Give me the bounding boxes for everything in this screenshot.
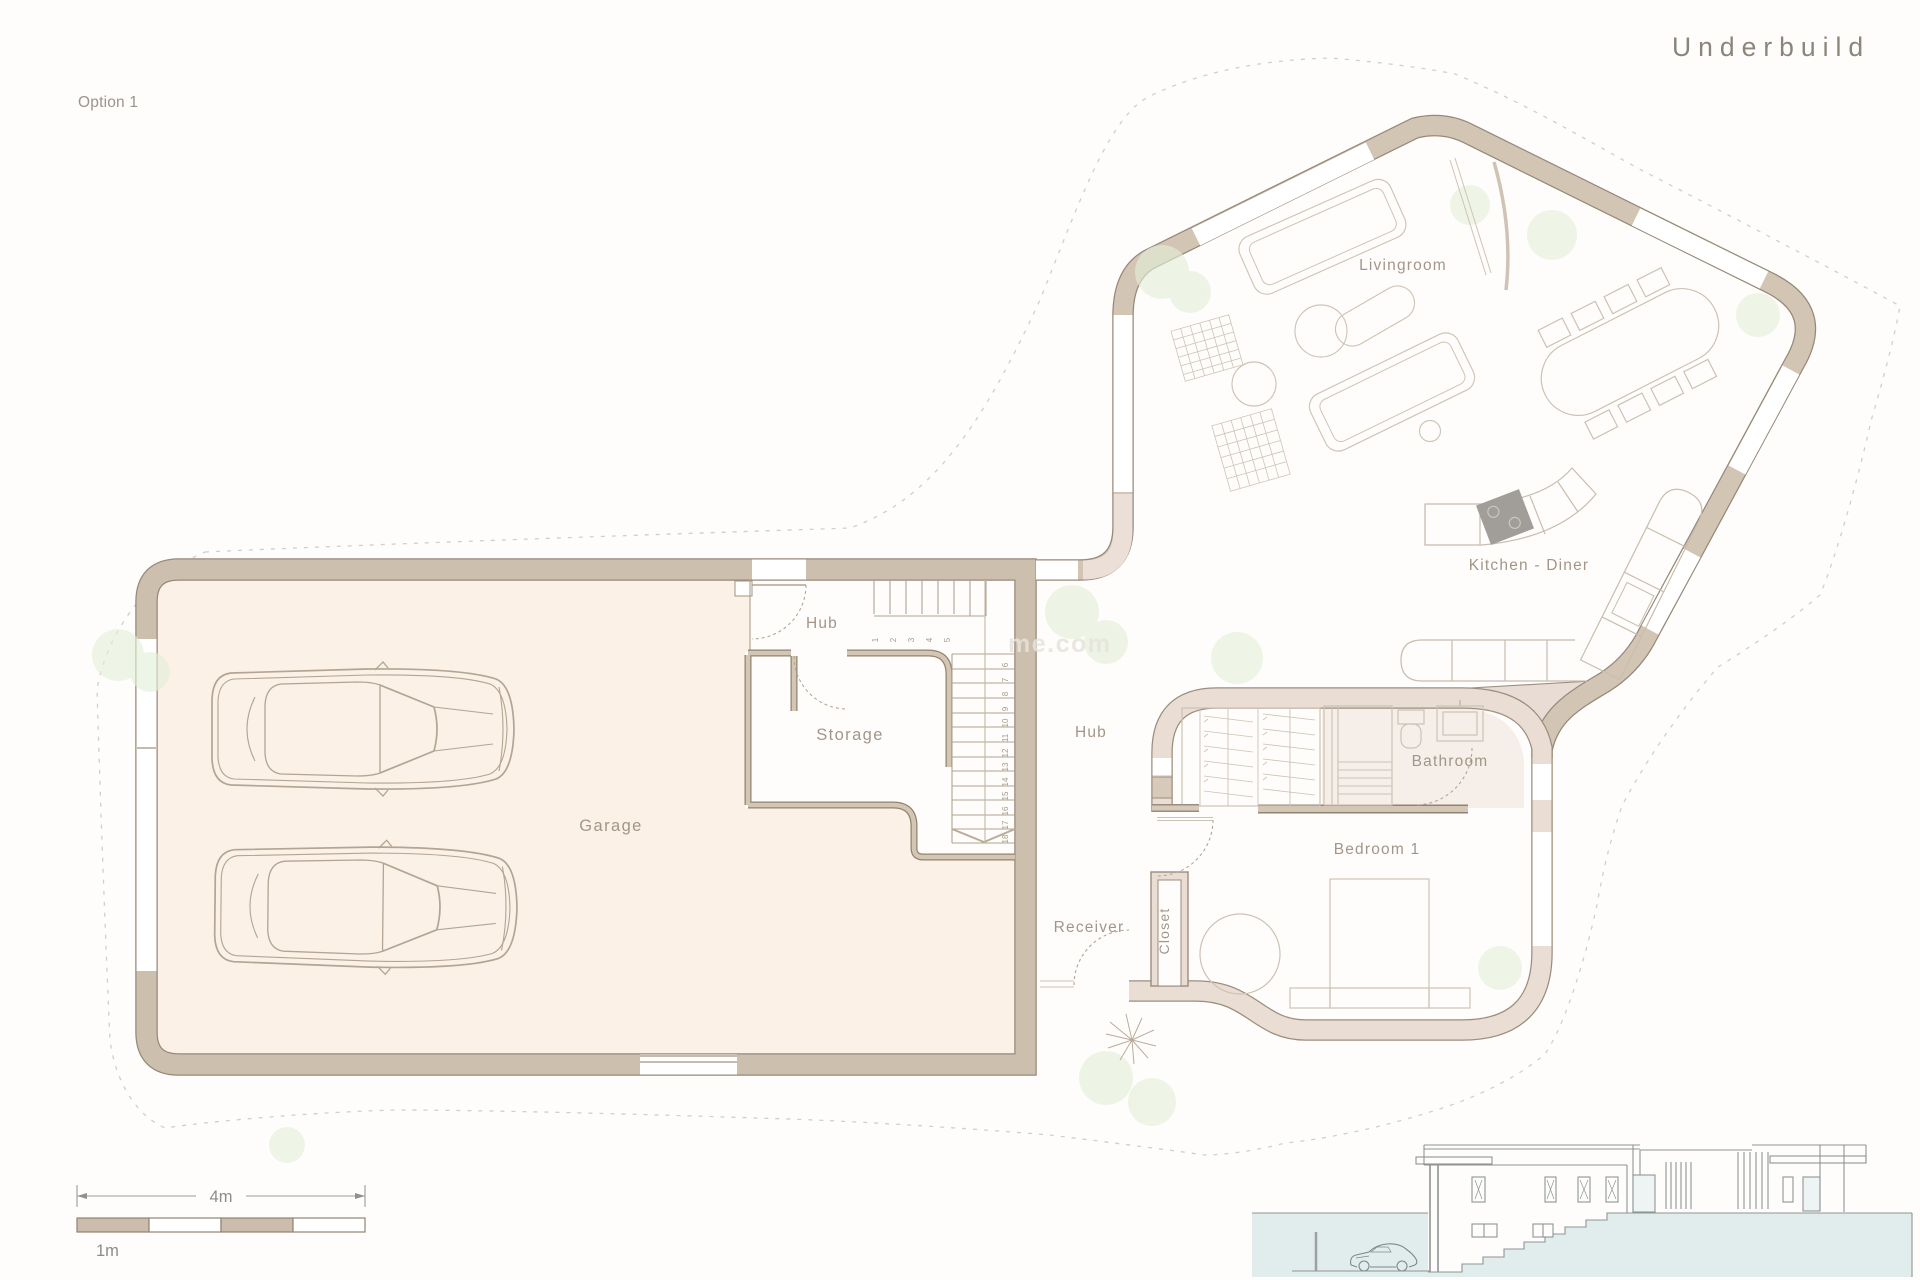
svg-text:17: 17 [1001,820,1010,829]
svg-text:9: 9 [1001,706,1010,711]
svg-text:Kitchen - Diner: Kitchen - Diner [1469,557,1590,574]
svg-text:me.com: me.com [1008,630,1111,658]
svg-text:Livingroom: Livingroom [1359,257,1447,274]
svg-text:4: 4 [925,637,934,642]
svg-text:14: 14 [1001,777,1010,786]
svg-text:13: 13 [1001,762,1010,771]
svg-text:Storage: Storage [816,726,884,744]
svg-text:1: 1 [871,637,880,642]
svg-text:Hub: Hub [806,615,838,632]
svg-text:6: 6 [1001,662,1010,667]
svg-text:5: 5 [943,637,952,642]
svg-text:Bedroom 1: Bedroom 1 [1334,841,1421,858]
svg-text:Bathroom: Bathroom [1412,753,1489,770]
svg-text:Closet: Closet [1156,908,1172,955]
svg-text:15: 15 [1001,791,1010,800]
svg-text:Hub: Hub [1075,724,1107,741]
svg-text:7: 7 [1001,677,1010,682]
svg-text:3: 3 [907,637,916,642]
svg-text:2: 2 [889,637,898,642]
svg-text:Underbuild: Underbuild [1672,32,1870,62]
svg-text:16: 16 [1001,806,1010,815]
svg-text:Garage: Garage [579,817,642,835]
svg-text:4m: 4m [210,1188,233,1206]
svg-text:1m: 1m [96,1242,119,1260]
svg-text:8: 8 [1001,691,1010,696]
svg-text:Receiver: Receiver [1054,919,1125,936]
svg-text:Option 1: Option 1 [78,94,138,111]
svg-text:10: 10 [1001,718,1010,727]
svg-text:18: 18 [1001,834,1010,843]
svg-text:12: 12 [1001,748,1010,757]
svg-text:11: 11 [1001,733,1010,742]
